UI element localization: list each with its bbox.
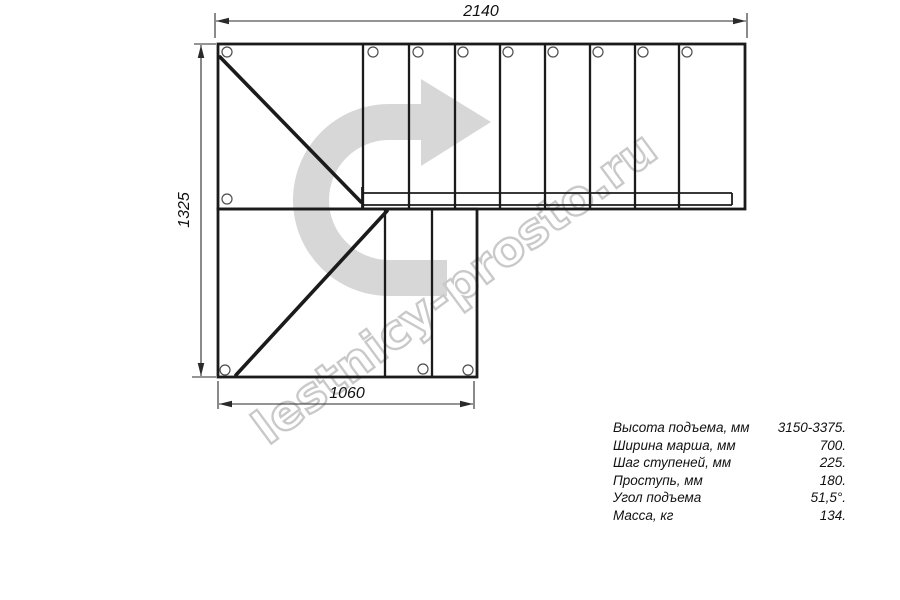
spec-row-height: Высота подъема, мм 3150-3375. <box>613 419 846 437</box>
spec-value: 180. <box>820 472 846 490</box>
spec-row-angle: Угол подъема 51,5°. <box>613 489 846 507</box>
spec-label: Масса, кг <box>613 507 673 525</box>
spec-row-tread: Проступь, мм 180. <box>613 472 846 490</box>
spec-value: 3150-3375. <box>778 419 846 437</box>
spec-label: Проступь, мм <box>613 472 703 490</box>
spec-value: 225. <box>820 454 846 472</box>
spec-label: Шаг ступеней, мм <box>613 454 731 472</box>
spec-row-march-width: Ширина марша, мм 700. <box>613 437 846 455</box>
bottom-dimension-value: 1060 <box>329 385 365 402</box>
top-dimension-value: 2140 <box>462 3 499 20</box>
left-dimension-value: 1325 <box>176 192 193 228</box>
spec-value: 134. <box>820 507 846 525</box>
left-dimension: 1325 <box>176 44 216 377</box>
staircase-plan-page: lestnicy-prosto.ru <box>0 0 900 600</box>
spec-label: Высота подъема, мм <box>613 419 749 437</box>
spec-row-step-pitch: Шаг ступеней, мм 225. <box>613 454 846 472</box>
spec-value: 700. <box>820 437 846 455</box>
spec-table: Высота подъема, мм 3150-3375. Ширина мар… <box>613 419 846 525</box>
spec-label: Ширина марша, мм <box>613 437 736 455</box>
top-dimension: 2140 <box>215 3 747 38</box>
spec-row-mass: Масса, кг 134. <box>613 507 846 525</box>
spec-label: Угол подъема <box>613 489 701 507</box>
spec-value: 51,5°. <box>811 489 846 507</box>
